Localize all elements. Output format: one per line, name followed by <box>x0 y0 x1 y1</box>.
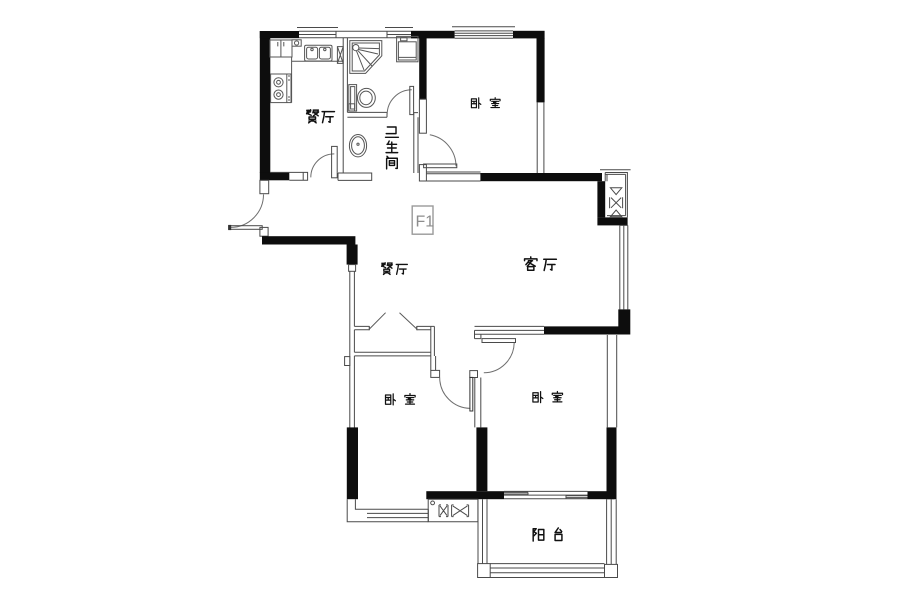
svg-text:F1: F1 <box>416 214 435 231</box>
